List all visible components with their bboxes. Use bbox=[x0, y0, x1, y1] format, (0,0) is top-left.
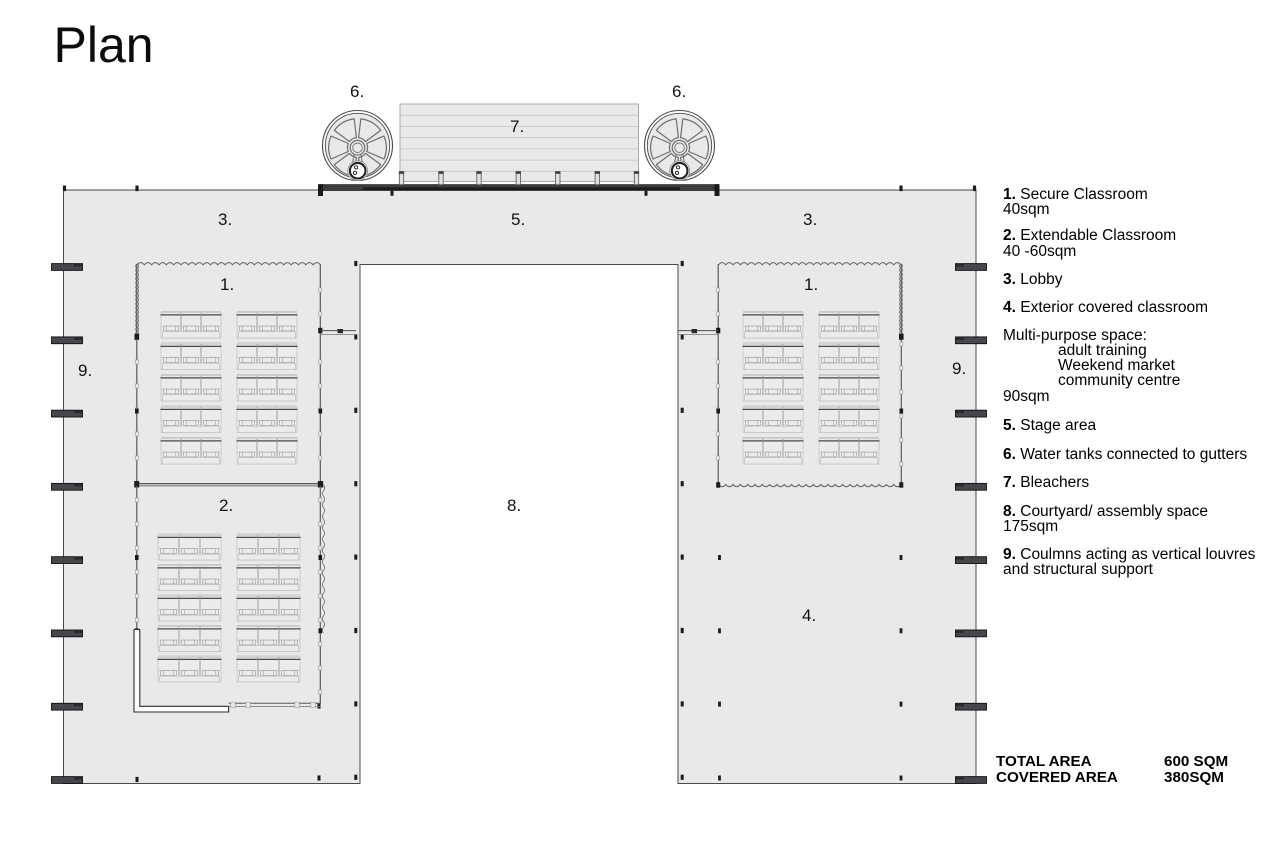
svg-text:1.: 1. bbox=[804, 275, 818, 294]
svg-text:8.: 8. bbox=[507, 496, 521, 515]
svg-text:3.: 3. bbox=[218, 210, 232, 229]
svg-text:4.: 4. bbox=[802, 606, 816, 625]
svg-text:2.: 2. bbox=[219, 496, 233, 515]
svg-text:1.: 1. bbox=[220, 275, 234, 294]
svg-text:3.: 3. bbox=[803, 210, 817, 229]
svg-text:6.: 6. bbox=[350, 82, 364, 101]
svg-text:5.: 5. bbox=[511, 210, 525, 229]
svg-text:7.: 7. bbox=[510, 117, 524, 136]
svg-text:9.: 9. bbox=[952, 359, 966, 378]
svg-text:9.: 9. bbox=[78, 361, 92, 380]
svg-text:6.: 6. bbox=[672, 82, 686, 101]
